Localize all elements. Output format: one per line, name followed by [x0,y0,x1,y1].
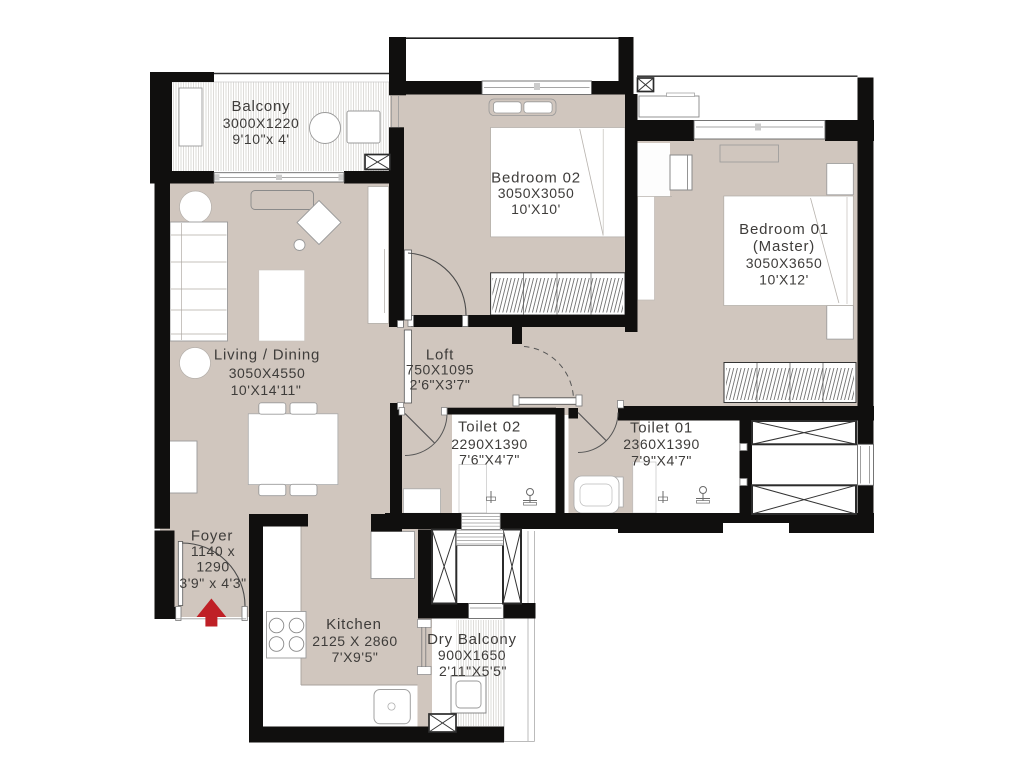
svg-text:(Master): (Master) [753,238,815,255]
svg-text:1290: 1290 [196,559,229,575]
svg-text:3050X4550: 3050X4550 [229,365,306,381]
svg-text:7'9"X4'7": 7'9"X4'7" [631,453,692,469]
svg-text:Toilet 01: Toilet 01 [630,420,693,437]
svg-text:1140 x: 1140 x [191,543,235,559]
svg-text:Balcony: Balcony [232,98,291,115]
svg-text:Dry Balcony: Dry Balcony [427,631,517,648]
svg-text:2290X1390: 2290X1390 [451,436,528,452]
svg-text:Bedroom 02: Bedroom 02 [491,170,581,187]
svg-text:750X1095: 750X1095 [406,362,474,378]
svg-text:7'X9'5": 7'X9'5" [332,649,379,665]
svg-text:2'6"X3'7": 2'6"X3'7" [410,377,471,393]
svg-text:Toilet 02: Toilet 02 [458,419,521,436]
svg-text:Living / Dining: Living / Dining [214,347,320,364]
svg-text:7'6"X4'7": 7'6"X4'7" [459,452,520,468]
svg-text:2360X1390: 2360X1390 [623,436,700,452]
svg-text:900X1650: 900X1650 [438,647,506,663]
svg-text:10'X12': 10'X12' [759,272,809,288]
svg-text:3'9" x 4'3": 3'9" x 4'3" [179,575,246,591]
svg-text:3000X1220: 3000X1220 [223,115,300,131]
svg-text:2'11"X5'5": 2'11"X5'5" [439,663,507,679]
svg-text:3050X3050: 3050X3050 [498,185,575,201]
svg-text:Foyer: Foyer [191,528,233,545]
svg-text:3050X3650: 3050X3650 [746,255,823,271]
svg-text:10'X10': 10'X10' [511,201,561,217]
svg-text:2125 X 2860: 2125 X 2860 [312,633,397,649]
svg-text:Kitchen: Kitchen [326,616,382,633]
svg-text:Bedroom 01: Bedroom 01 [739,221,829,238]
svg-text:10'X14'11": 10'X14'11" [231,382,302,398]
svg-text:9'10"x 4': 9'10"x 4' [232,131,289,147]
